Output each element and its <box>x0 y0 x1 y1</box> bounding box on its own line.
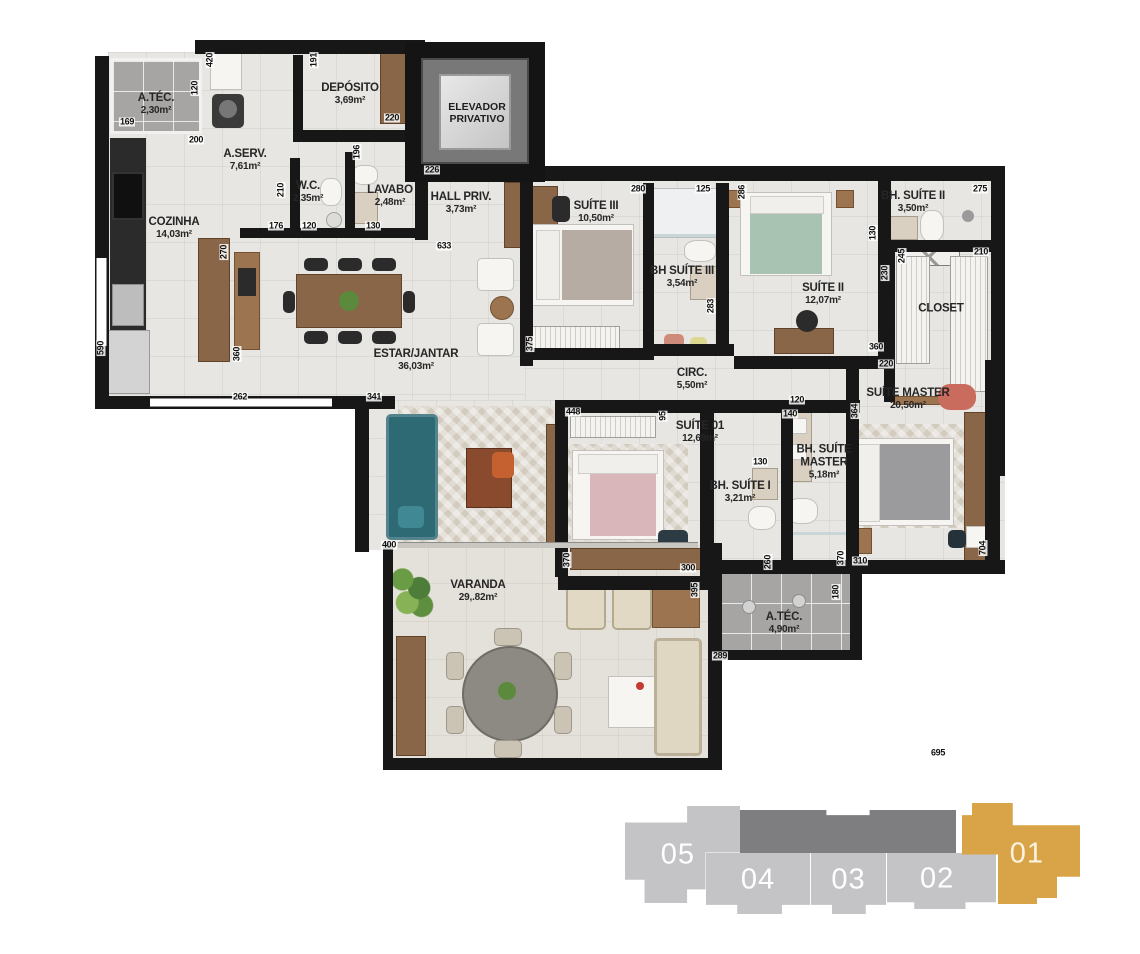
dimension-label: 370 <box>563 552 572 568</box>
floor-plan-canvas: ELEVADOR PRIVATIVO A.TÉC. 2,30m² DEPÓSIT… <box>0 0 1140 954</box>
dining-chair <box>304 258 328 271</box>
dimension-label: 262 <box>232 393 248 402</box>
dimension-label: 230 <box>881 265 890 281</box>
dining-chair <box>338 331 362 344</box>
room-label-hall: HALL PRIV. 3,73m² <box>431 191 492 215</box>
unit-05-label: 05 <box>661 839 695 872</box>
wall <box>345 152 355 238</box>
unit-02[interactable]: 02 <box>887 853 996 909</box>
varanda-chair <box>554 706 572 734</box>
wall <box>383 758 721 770</box>
varanda-coffee-table <box>608 676 656 728</box>
room-label-bhsuite3: BH SUÍTE III 3,54m² <box>649 265 715 289</box>
room-label-suite3: SUÍTE III 10,50m² <box>574 200 619 224</box>
hall-armchair <box>477 323 514 356</box>
dining-chair <box>403 291 415 313</box>
wall <box>781 408 793 560</box>
room-label-estar: ESTAR/JANTAR 36,03m² <box>374 348 459 372</box>
dimension-label: 704 <box>979 540 988 556</box>
varanda-armchair <box>612 586 652 630</box>
dimension-label: 275 <box>972 185 988 194</box>
dimension-label: 283 <box>707 298 716 314</box>
kitchen-sink <box>112 284 144 326</box>
cooktop-icon <box>238 268 256 296</box>
dimension-label: 260 <box>764 554 773 570</box>
room-label-bhsuite1: BH. SUÍTE I 3,21m² <box>707 480 773 504</box>
pipe-icon <box>742 600 756 614</box>
master-chair <box>948 530 966 548</box>
dimension-label: 120 <box>789 396 805 405</box>
wall <box>293 55 303 133</box>
wall <box>850 573 862 658</box>
unit-04[interactable]: 04 <box>706 853 810 914</box>
window <box>96 258 107 346</box>
varanda-armchair <box>566 586 606 630</box>
unit-02-label: 02 <box>920 862 954 895</box>
dimension-label: 360 <box>233 346 242 362</box>
dimension-label: 140 <box>782 410 798 419</box>
room-label-bhsuite2: BH. SUÍTE II 3,50m² <box>880 190 946 214</box>
suite1-blanket <box>590 474 656 536</box>
wall <box>525 166 1005 181</box>
room-label-suite2: SUÍTE II 12,07m² <box>802 282 844 306</box>
dimension-label: 95 <box>659 410 668 421</box>
dimension-label: 289 <box>712 652 728 661</box>
dimension-label: 375 <box>526 336 535 352</box>
room-label-suitemaster: SUÍTE MASTER 20,50m² <box>866 387 949 411</box>
dimension-label: 210 <box>277 182 286 198</box>
wall <box>558 576 708 590</box>
dimension-label: 420 <box>206 52 215 68</box>
dimension-label: 220 <box>878 360 894 369</box>
dimension-label: 226 <box>424 166 440 175</box>
room-label-atec1: A.TÉC. 2,30m² <box>138 92 175 116</box>
suite3-blanket <box>562 230 632 300</box>
dining-chair <box>304 331 328 344</box>
dimension-label: 176 <box>268 222 284 231</box>
accent-chair-orange <box>492 452 514 478</box>
hall-armchair <box>477 258 514 291</box>
wall <box>734 356 884 369</box>
dimension-label: 695 <box>930 749 946 758</box>
dimension-label: 280 <box>630 185 646 194</box>
dimension-label: 200 <box>188 136 204 145</box>
dimension-label: 395 <box>691 582 700 598</box>
wc-shower-drain <box>326 212 342 228</box>
sofa-cushion <box>398 506 424 528</box>
room-label-deposito: DEPÓSITO 3,69m² <box>321 82 379 106</box>
varanda-chair <box>446 652 464 680</box>
bh3-shower <box>652 188 718 238</box>
suite1-pillows <box>578 454 658 474</box>
suite2-desk <box>774 328 834 354</box>
room-label-cozinha: COZINHA 14,03m² <box>149 216 200 240</box>
washer-door-icon <box>219 100 237 118</box>
dimension-label: 400 <box>381 541 397 550</box>
dimension-label: 130 <box>752 458 768 467</box>
bh1-toilet <box>748 506 776 530</box>
room-label-bhmaster: BH. SUÍTE MASTER 5,18m² <box>791 444 857 481</box>
wall <box>95 56 109 140</box>
wall <box>293 130 423 142</box>
fridge <box>108 330 150 394</box>
unit-03[interactable]: 03 <box>811 853 886 914</box>
dimension-label: 220 <box>384 114 400 123</box>
pipe-icon <box>792 594 806 608</box>
varanda-sofa <box>654 638 702 756</box>
suite2-chair <box>796 310 818 332</box>
room-label-atec2: A.TÉC. 4,90m² <box>766 611 803 635</box>
varanda-chair <box>446 706 464 734</box>
dimension-label: 370 <box>837 550 846 566</box>
dimension-label: 270 <box>220 244 229 260</box>
dimension-label: 130 <box>869 225 878 241</box>
wall <box>383 543 393 770</box>
master-blanket <box>880 444 950 520</box>
closet-rack-right <box>950 256 988 392</box>
building-key-plan: 05 04 03 02 01 <box>618 795 1088 925</box>
bh2-shower-head <box>962 210 974 222</box>
lavabo-toilet <box>352 165 378 185</box>
dimension-label: 120 <box>191 80 200 96</box>
room-label-wc: W.C. 2,35m² <box>293 180 324 204</box>
table-plant-icon <box>498 682 516 700</box>
room-label-elevador: ELEVADOR PRIVATIVO <box>432 101 522 125</box>
bhm-shower-glass <box>784 532 854 535</box>
dimension-label: 590 <box>97 340 106 356</box>
table-plant-icon <box>339 291 359 311</box>
varanda-chair <box>494 740 522 758</box>
unit-03-label: 03 <box>831 863 865 896</box>
room-label-aserv: A.SERV. 7,61m² <box>223 148 266 172</box>
wall <box>355 400 369 552</box>
building-core <box>740 810 956 853</box>
suite2-nightstand <box>836 190 854 208</box>
dimension-label: 180 <box>832 584 841 600</box>
dimension-label: 310 <box>852 557 868 566</box>
dimension-label: 120 <box>301 222 317 231</box>
room-label-circ: CIRC. 5,50m² <box>677 367 708 391</box>
stove-icon <box>112 172 144 220</box>
dimension-label: 300 <box>680 564 696 573</box>
room-label-lavabo: LAVABO 2,48m² <box>367 184 413 208</box>
dimension-label: 360 <box>868 343 884 352</box>
dimension-label: 364 <box>851 403 860 419</box>
wall <box>716 183 729 351</box>
varanda-chair <box>554 652 572 680</box>
room-label-varanda: VARANDA 29,.82m² <box>450 579 505 603</box>
kitchen-island-2 <box>234 252 260 350</box>
suite2-pillows <box>750 196 824 214</box>
dimension-label: 448 <box>565 408 581 417</box>
wall <box>654 344 734 356</box>
dimension-label: 210 <box>973 248 989 257</box>
dimension-label: 196 <box>353 144 362 160</box>
wall <box>715 650 862 660</box>
dining-chair <box>338 258 362 271</box>
laundry-tank <box>210 52 242 90</box>
flower-decor-icon <box>636 682 644 690</box>
dining-chair <box>372 258 396 271</box>
dimension-label: 286 <box>738 184 747 200</box>
varanda-chair <box>494 628 522 646</box>
bh3-toilet <box>684 240 716 262</box>
room-label-closet: CLOSET <box>918 303 963 316</box>
dining-chair <box>372 331 396 344</box>
master-pillows <box>856 444 880 522</box>
suite3-chair <box>552 196 570 222</box>
bh2-toilet <box>920 210 944 242</box>
dimension-label: 191 <box>310 52 319 68</box>
plant-icon <box>388 562 436 620</box>
dimension-label: 341 <box>366 393 382 402</box>
bh3-shower-glass <box>652 234 716 237</box>
varanda-console <box>396 636 426 756</box>
dimension-label: 633 <box>436 242 452 251</box>
suite3-pillows <box>536 230 560 300</box>
dimension-label: 245 <box>898 248 907 264</box>
dimension-label: 125 <box>695 185 711 194</box>
room-label-suite1: SUÍTE 01 12,69m² <box>676 420 724 444</box>
sliding-door <box>398 542 698 548</box>
unit-01-label: 01 <box>1010 837 1044 870</box>
suite1-wardrobe <box>570 416 656 438</box>
wall <box>527 348 647 360</box>
unit-04-label: 04 <box>741 863 775 896</box>
dining-chair <box>283 291 295 313</box>
hall-side-table <box>490 296 514 320</box>
dimension-label: 169 <box>119 118 135 127</box>
dimension-label: 130 <box>365 222 381 231</box>
suite2-blanket <box>750 214 822 274</box>
